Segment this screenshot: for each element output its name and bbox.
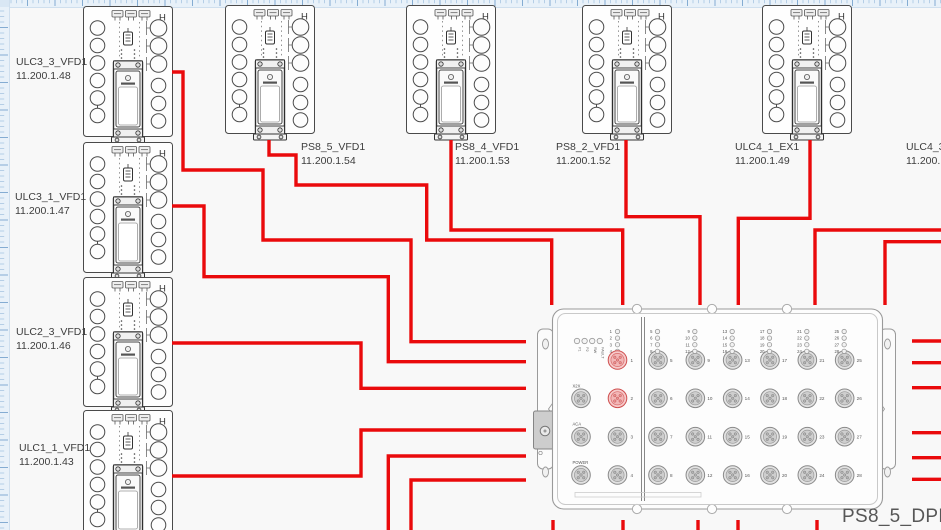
port-led-number: 27 [834,342,839,347]
m12-connector[interactable] [151,482,166,497]
port-led [805,336,809,340]
port-led [842,336,846,340]
dpm-port-22[interactable] [798,389,817,408]
port-led [842,349,846,353]
port-number: 22 [819,396,825,401]
m12-connector[interactable] [769,37,784,52]
m12-connector[interactable] [769,90,784,105]
port-led [730,343,734,347]
port-number: 3 [631,435,634,440]
m12-connector[interactable] [151,385,166,400]
port-number: 12 [707,473,713,478]
wire-ulc4_1_ex1-to-dpm[interactable] [738,140,810,305]
m12-connector[interactable] [292,37,309,54]
m12-connector[interactable] [232,20,247,35]
m12-connector[interactable] [473,37,490,54]
port-number: 13 [745,358,751,363]
device-ULC3_1_VFD1[interactable]: H [84,143,173,280]
m12-connector[interactable] [474,77,489,92]
dpm-port-4[interactable] [608,466,627,485]
screw-icon [278,128,282,132]
dpm-port-6[interactable] [649,389,668,408]
port-led [655,336,659,340]
status-led [582,338,587,343]
port-number: 2 [631,396,634,401]
screw-icon [635,128,639,132]
m12-connector[interactable] [589,90,604,105]
m12-connector[interactable] [90,425,105,440]
m12-connector[interactable] [413,72,428,87]
dpm-port-27[interactable] [835,427,854,446]
m12-connector[interactable] [649,55,666,72]
screw-icon [116,131,120,135]
device-PS8_2_VFD1[interactable]: H [583,6,672,141]
wire-offscreen-bottom-to-dpm-left-5[interactable] [388,456,526,530]
wire-ps8_2_vfd1-to-dpm[interactable] [626,140,700,305]
m12-connector[interactable] [151,232,166,247]
screw-icon [136,334,140,338]
m12-connector[interactable] [829,19,846,36]
screw-icon [258,62,262,66]
port-led [693,336,697,340]
port-led [730,349,734,353]
m12-connector[interactable] [90,362,105,377]
screw-icon [614,135,618,139]
m12-connector[interactable] [150,460,167,477]
m12-connector[interactable] [90,174,105,189]
m12-connector[interactable] [150,20,167,37]
m12-connector[interactable] [769,107,784,122]
m12-connector[interactable] [589,37,604,52]
wire-ps8_4_vfd1-to-dpm[interactable] [451,140,623,305]
m12-connector[interactable] [90,477,105,492]
m12-connector[interactable] [473,55,490,72]
dpm-port-1[interactable] [608,351,627,370]
port-number: 6 [670,396,673,401]
interface-icon [124,436,133,449]
port-led [842,329,846,333]
m12-connector[interactable] [90,495,105,510]
m12-connector[interactable] [769,20,784,35]
screw-icon [459,128,463,132]
screw-slot-icon [543,467,549,477]
screw-slot-icon [885,339,891,349]
m12-connector[interactable] [589,55,604,70]
m12-connector[interactable] [151,78,166,93]
m12-connector[interactable] [90,91,105,106]
dpm-port-11[interactable] [686,427,705,446]
dpm-port-20[interactable] [761,466,780,485]
port-led-number: 22 [797,336,802,341]
m12-connector[interactable] [150,309,167,326]
port-number: 23 [819,435,825,440]
status-led [590,338,595,343]
screw-icon [439,128,443,132]
device-ULC1_1_VFD1[interactable]: H [84,411,173,530]
interface-icon [623,31,632,44]
port-number: 18 [782,396,788,401]
aux-port-label: ACA [573,422,582,427]
port-led-number: 23 [797,342,802,347]
m12-connector[interactable] [650,95,665,110]
port-number: 17 [782,358,788,363]
device-ULC3_3_VFD1[interactable]: H [84,7,173,144]
screw-icon [136,199,140,203]
dpm-port-15[interactable] [723,427,742,446]
screw-icon [258,128,262,132]
port-number: 9 [707,358,710,363]
dpm-port-14[interactable] [723,389,742,408]
m12-connector[interactable] [150,327,167,344]
port-led [767,349,771,353]
dpm-port-12[interactable] [686,466,705,485]
m12-connector[interactable] [151,349,166,364]
m12-connector[interactable] [90,244,105,259]
screw-icon [116,467,120,471]
ruler-corner [0,0,9,7]
m12-connector[interactable] [90,56,105,71]
brand-logo-icon [125,346,130,351]
brand-logo-icon [125,75,130,80]
port-number: 4 [631,473,634,478]
status-led [597,338,602,343]
dpm-port-x2x[interactable] [572,389,591,408]
port-led-number: 18 [760,336,765,341]
screw-icon [136,267,140,271]
m12-connector[interactable] [650,113,665,128]
m12-connector[interactable] [90,192,105,207]
screw-icon [815,128,819,132]
m12-connector[interactable] [90,38,105,53]
m12-connector[interactable] [90,379,105,394]
wire-offscreen-right-to-dpm-top-6[interactable] [885,242,941,305]
dpm-port-aca[interactable] [572,427,591,446]
port-led-number: 26 [834,336,839,341]
port-led [767,336,771,340]
m12-connector[interactable] [150,424,167,441]
port-led [693,349,697,353]
m12-connector[interactable] [90,157,105,172]
m12-connector[interactable] [413,20,428,35]
m12-connector[interactable] [830,77,845,92]
dpm-port-18[interactable] [761,389,780,408]
m12-connector[interactable] [90,292,105,307]
port-led [805,349,809,353]
screw-icon [116,267,120,271]
port-number: 25 [857,358,863,363]
m12-connector[interactable] [151,214,166,229]
m12-connector[interactable] [232,107,247,122]
device-ULC2_3_VFD1[interactable]: H [84,278,173,414]
port-led [805,343,809,347]
m12-connector[interactable] [90,442,105,457]
dpm-port-power[interactable] [572,466,591,485]
screw-slot-icon [885,467,891,477]
dpm-port-24[interactable] [798,466,817,485]
dpm-port-7[interactable] [649,427,668,446]
port-led-number: 28 [834,349,839,354]
device-ULC4_1_EX1[interactable]: H [763,6,852,141]
port-led [693,329,697,333]
port-number: 11 [707,435,712,440]
port-led-number: 21 [797,329,802,334]
port-led [655,349,659,353]
cad-viewport[interactable]: HHHHHHHHP1P2RWFAULT1234X2XACAPOWER123455… [0,0,941,530]
port-led [805,329,809,333]
m12-connector[interactable] [292,55,309,72]
dpm-port-23[interactable] [798,427,817,446]
screw-icon [636,135,640,139]
port-number: 14 [745,396,751,401]
m12-connector[interactable] [769,55,784,70]
m12-connector[interactable] [90,512,105,527]
port-number: 26 [857,396,863,401]
interface-icon [124,32,133,45]
port-number: 8 [670,473,673,478]
port-led-number: 19 [760,342,765,347]
wire-ulc2_3_vfd1-to-dpm[interactable] [172,343,526,388]
m12-connector[interactable] [90,344,105,359]
interface-icon [266,31,275,44]
m12-connector[interactable] [474,113,489,128]
m12-connector[interactable] [150,38,167,55]
m12-connector[interactable] [413,90,428,105]
screw-icon [136,467,140,471]
status-led-label: P1 [578,347,582,352]
m12-connector[interactable] [649,37,666,54]
screw-slot-icon [543,339,549,349]
port-led [615,343,619,347]
m12-connector[interactable] [150,56,167,73]
port-led [767,329,771,333]
m12-connector[interactable] [90,209,105,224]
screw-icon [615,128,619,132]
m12-connector[interactable] [829,55,846,72]
port-led-number: 13 [722,329,727,334]
schematic-canvas[interactable]: HHHHHHHHP1P2RWFAULT1234X2XACAPOWER123455… [0,0,941,530]
screw-icon [115,138,119,142]
port-led-number: 17 [760,329,765,334]
screw-icon [116,63,120,67]
interface-icon [124,168,133,181]
m12-connector[interactable] [769,72,784,87]
screw-icon [279,135,283,139]
m12-connector[interactable] [151,518,166,530]
m12-connector[interactable] [90,309,105,324]
aux-port-label: X2X [573,383,581,388]
m12-connector[interactable] [413,37,428,52]
m12-connector[interactable] [151,96,166,111]
m12-connector[interactable] [829,37,846,54]
m12-connector[interactable] [150,442,167,459]
dpm-port-16[interactable] [723,466,742,485]
screw-icon [815,62,819,66]
m12-connector[interactable] [150,192,167,209]
screw-icon [257,135,261,139]
screw-icon [136,401,140,405]
m12-connector[interactable] [90,108,105,123]
screw-icon [438,135,442,139]
status-led-label: RW [593,347,597,354]
screw-icon [137,138,141,142]
port-led [767,343,771,347]
port-number: 16 [745,473,751,478]
screw-icon [794,135,798,139]
port-number: 10 [707,396,713,401]
port-led [655,343,659,347]
port-number: 19 [782,435,788,440]
m12-connector[interactable] [293,95,308,110]
m12-connector[interactable] [232,55,247,70]
screw-icon [795,128,799,132]
dpm-port-10[interactable] [686,389,705,408]
screw-icon [460,135,464,139]
screw-icon [439,62,443,66]
m12-connector[interactable] [413,107,428,122]
m12-connector[interactable] [293,113,308,128]
port-number: 21 [819,358,825,363]
port-number: 27 [857,435,863,440]
port-led-number: 24 [797,349,802,354]
port-led-number: 10 [685,336,690,341]
m12-connector[interactable] [292,19,309,36]
port-number: 24 [819,473,825,478]
m12-connector[interactable] [151,500,166,515]
screw-icon [615,62,619,66]
m12-connector[interactable] [589,107,604,122]
port-led [730,336,734,340]
port-led [615,329,619,333]
dpm-port-19[interactable] [761,427,780,446]
screw-icon [136,63,140,67]
m12-connector[interactable] [232,90,247,105]
screw-icon [816,135,820,139]
brand-logo-icon [804,74,809,79]
brand-logo-icon [624,74,629,79]
status-led-label: P2 [585,347,589,352]
interface-icon [447,31,456,44]
port-number: 20 [782,473,788,478]
port-number: 5 [670,358,673,363]
m12-connector[interactable] [151,114,166,129]
port-number: 28 [857,473,863,478]
port-led-number: 16 [722,349,727,354]
wire-ulc1_1_vfd1-to-dpm[interactable] [172,430,526,476]
screw-icon [795,62,799,66]
m12-connector[interactable] [150,156,167,173]
screw-icon [278,62,282,66]
port-led-number: 11 [685,342,690,347]
dpm-port-26[interactable] [835,389,854,408]
screw-icon [116,334,120,338]
m12-connector[interactable] [232,37,247,52]
m12-connector[interactable] [90,227,105,242]
device-PS8_4_VFD1[interactable]: H [407,6,496,141]
m12-connector[interactable] [413,55,428,70]
device-PS8_5_VFD1[interactable]: H [226,6,315,141]
m12-connector[interactable] [151,250,166,265]
port-number: 15 [745,435,751,440]
port-led [655,329,659,333]
dpm-port-2[interactable] [608,389,627,408]
device-PS8_5_DPM1[interactable]: P1P2RWFAULT1234X2XACAPOWER12345566778899… [534,304,896,513]
port-led-number: 20 [760,349,765,354]
interface-icon [124,303,133,316]
m12-connector[interactable] [650,77,665,92]
m12-connector[interactable] [830,95,845,110]
m12-connector[interactable] [649,19,666,36]
dpm-port-3[interactable] [608,427,627,446]
screw-icon [136,131,140,135]
m12-connector[interactable] [474,95,489,110]
port-led [615,336,619,340]
screw-icon [459,62,463,66]
m12-connector[interactable] [293,77,308,92]
m12-connector[interactable] [90,73,105,88]
port-led [693,343,697,347]
m12-connector[interactable] [90,327,105,342]
brand-logo-icon [125,479,130,484]
m12-connector[interactable] [589,72,604,87]
dpm-port-28[interactable] [835,466,854,485]
m12-connector[interactable] [90,460,105,475]
m12-connector[interactable] [473,19,490,36]
m12-connector[interactable] [90,21,105,36]
port-number: 1 [631,358,634,363]
port-led [842,343,846,347]
m12-connector[interactable] [150,291,167,308]
screw-icon [116,401,120,405]
interface-icon [803,31,812,44]
status-led [574,338,579,343]
m12-connector[interactable] [150,174,167,191]
port-led-number: 12 [685,349,690,354]
status-led-label: FAULT [600,347,604,359]
screw-icon [635,62,639,66]
dpm-port-8[interactable] [649,466,668,485]
port-led-number: 15 [722,342,727,347]
ruler-left [0,0,10,530]
m12-connector[interactable] [589,20,604,35]
aux-port-label: POWER [573,460,589,465]
port-led-number: 14 [722,336,727,341]
screw-icon [116,199,120,203]
port-number: 7 [670,435,673,440]
m12-connector[interactable] [151,367,166,382]
m12-connector[interactable] [232,72,247,87]
m12-connector[interactable] [830,113,845,128]
brand-logo-icon [125,211,130,216]
brand-logo-icon [448,74,453,79]
brand-logo-icon [267,74,272,79]
wire-offscreen-bottom-to-dpm-left-6[interactable] [411,480,526,530]
port-led [730,329,734,333]
port-led-number: 25 [834,329,839,334]
